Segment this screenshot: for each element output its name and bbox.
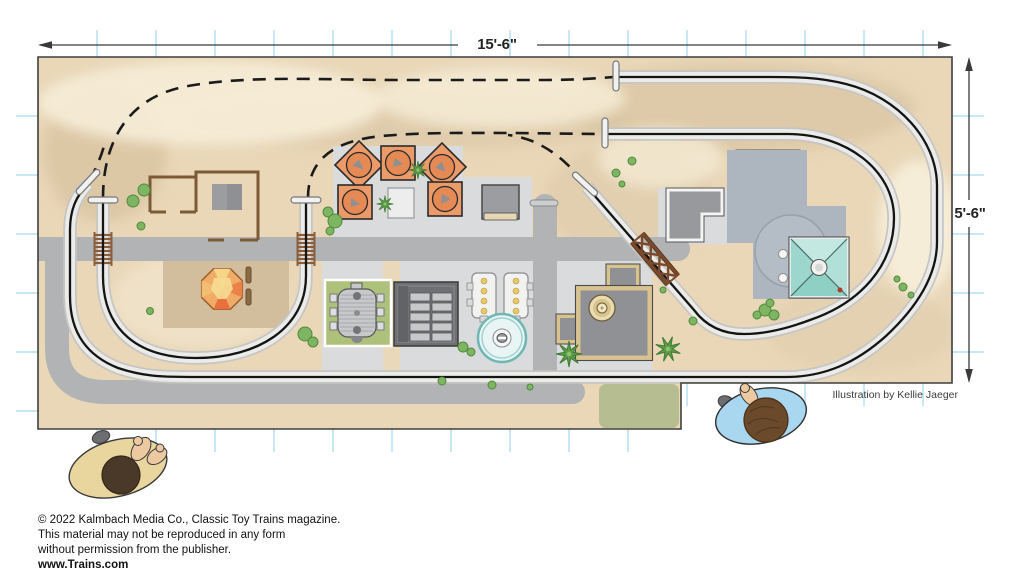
round-pool-ride [478,314,526,362]
window-roof-building [394,282,458,346]
copyright-line: © 2022 Kalmbach Media Co., Classic Toy T… [38,513,340,528]
gray-roof-building [482,185,519,220]
copyright-url: www.Trains.com [38,558,340,573]
layout-illustration [0,0,1014,588]
width-dimension-label: 15'-6" [459,36,535,53]
kiosk [388,188,414,218]
olive-pad [599,384,679,428]
height-dimension-label: 5'-6" [941,205,999,222]
palm-tree [556,341,582,367]
copyright-line: This material may not be reproduced in a… [38,528,340,543]
track-plan-figure: 15'-6" 5'-6" Illustration by Kellie Jaeg… [0,0,1014,588]
spiky-bush [377,196,394,213]
spiky-bush [409,161,427,179]
road-gate [530,200,558,206]
green-pad-ride [325,280,391,346]
copyright-line: without permission from the publisher. [38,543,340,558]
copyright-block: © 2022 Kalmbach Media Co., Classic Toy T… [38,513,340,573]
illustration-credit: Illustration by Kellie Jaeger [758,389,958,401]
